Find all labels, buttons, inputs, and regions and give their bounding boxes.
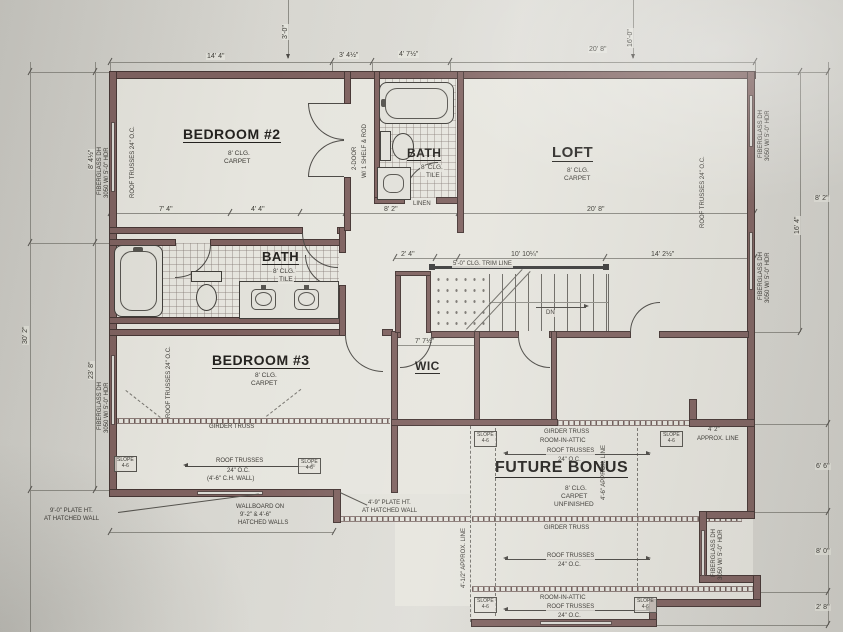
sink-faucet [261,285,266,289]
window-callout: 3050 W/ 5'-0" HDR [765,252,772,303]
roof-truss-note: ROOF TRUSSES 24" O.C. [130,126,137,198]
room-sub: 8' CLG. [420,165,444,172]
roof-truss-oc: 24" O.C. [558,613,581,620]
wall-chase [396,272,400,332]
arrowhead [183,463,188,467]
window-loft-right-lower [749,232,753,290]
approx-line-dashed [470,426,471,622]
dim-label-top-2: 3' 4½" [338,52,359,59]
wall-bath-top-east [458,72,463,232]
arrowhead [584,304,589,308]
girder-truss-line-bonus-bottom [472,586,756,592]
dim-label-right-bay-1: 6' 6" [815,463,831,470]
slope-marker: SLOPE 4-6 [474,597,497,613]
window-callout: FIBERGLASS DH [758,110,765,158]
wall-hall-west [340,286,345,335]
bathtub-faucet [133,247,143,252]
extension-line [755,62,756,72]
wall-bay-step-h2 [700,576,760,582]
dim-label-mid-1: 2' 4" [400,251,416,258]
window-callout: 3050 W/ 5'-0" HDR [104,382,111,433]
girder-truss-label: GIRDER TRUSS [544,525,589,532]
arrowhead [503,556,508,560]
room-sub: TILE [278,277,294,284]
ch-wall-note: (4'-6" C.H. WALL) [207,476,254,483]
extension-line [30,243,110,244]
dimension-line [395,258,755,259]
dim-label-right-upper: 8' 2" [814,195,830,202]
plate-height-note: 4'-9" PLATE HT. [368,500,411,507]
roof-truss-oc: 24" O.C. [558,562,581,569]
room-title-loft: LOFT [552,145,593,162]
wall-stairhall-south [550,332,630,337]
stair-direction-arrow [536,307,586,308]
dim-label-upper-2: 4' 4" [250,206,266,213]
approx-line-dashed [495,428,496,616]
dim-label-right-loft: 16' 4" [794,216,801,235]
roof-truss-note: ROOF TRUSSES 24" O.C. [166,346,173,418]
window-callout: 3050 W/ 5'-0" HDR [718,529,725,580]
extension-line [30,490,110,491]
dim-label-cut-1: 3'-0" [282,24,289,40]
arrowhead [286,54,290,59]
room-sub: TILE [425,173,441,180]
extension-line [450,62,451,72]
room-in-attic-label: ROOM-IN-ATTIC [540,595,586,602]
wall-stairhall-south [660,332,748,337]
railing-post [429,264,435,270]
approx-line-note: 4'-1/2" APPROX. LINE [461,528,468,588]
arrowhead [646,451,651,455]
bathtub-basin [385,88,448,119]
girder-truss-label: GIRDER TRUSS [208,424,255,431]
railing-post [603,264,609,270]
approx-line-dashed [637,428,638,586]
stair-dn-label: DN [545,310,556,317]
door-leaf [308,176,344,177]
closet-door-note: 2-DOOR [352,147,359,170]
extension-line [332,62,333,72]
arrowhead [503,607,508,611]
extension-line [755,72,828,73]
dim-label-right-bay-2: 8' 0" [815,548,831,555]
room-sub: 8' CLG. [272,269,296,276]
dim-label-left-lower: 23' 8" [88,361,95,380]
room-sub: CARPET [251,381,277,388]
window-bonus-bay [701,530,705,576]
window-callout: 3050 W/ 5'-0" HDR [765,110,772,161]
closet-shelf-note: W/ 1 SHELF & ROD [362,124,369,178]
room-in-attic-label: ROOM-IN-ATTIC [540,438,586,445]
window-loft-right-upper [749,95,753,147]
room-title-wic: WIC [415,360,440,374]
wall-closet-west [345,178,350,230]
sink-bowl [298,292,315,306]
dimension-line [110,62,755,63]
approx-line-note: APPROX. LINE [697,436,739,443]
roof-truss-oc: 24" O.C. [558,457,581,464]
slope-value: 4-6 [477,439,494,445]
room-sub: UNFINISHED [554,502,594,509]
window-bedroom3-left [111,355,115,425]
wall-chase [396,272,430,275]
dim-label-top-4: 20' 8" [588,46,607,53]
dim-label-right-bay-3: 2' 8" [815,604,831,611]
slope-marker: SLOPE 4-6 [114,456,137,472]
slope-marker: SLOPE 4-6 [474,431,497,447]
window-bonus-bottom [540,621,612,625]
stair-stringer-line [489,302,608,303]
room-sub: 8' CLG. [228,151,250,158]
ceiling-trim-line-label: 5'-0" CLG. TRIM LINE [452,261,513,268]
dim-label-mid-2: 10' 10¼" [510,251,539,258]
wallboard-note: HATCHED WALLS [238,520,288,527]
toilet-tank [380,131,391,161]
extension-line [754,424,828,425]
girder-truss-label: GIRDER TRUSS [544,429,589,436]
sink-bowl [383,174,404,193]
wallboard-note: WALLBOARD ON [236,504,284,511]
room-sub: 8' CLG. [255,373,277,380]
dim-label-left-upper: 8' 4½" [88,149,95,170]
dimension-line [95,62,96,490]
bonus-corner-dim: 4' 2" [708,427,720,434]
wallboard-note: 9'-2" & 4'-6" [240,512,271,519]
sink-faucet [304,285,309,289]
window-callout: 3050 W/ 5'-0" HDR [104,147,111,198]
dim-label-upper-4: 20' 8" [586,206,605,213]
wall-bedroom3-top [383,330,392,335]
extension-line [655,625,828,626]
roof-truss-label: ROOF TRUSSES [546,604,595,611]
dimension-line [110,532,334,533]
dimension-line [828,62,829,625]
wall-chase [427,272,430,332]
linen-label: LINEN [412,201,432,208]
plate-height-note: AT HATCHED WALL [362,508,417,515]
slope-marker: SLOPE 4-6 [634,597,657,613]
dim-label-top-3: 4' 7½" [398,51,419,58]
room-title-bedroom3: BEDROOM #3 [212,353,310,369]
slope-value: 4-6 [637,605,654,611]
room-title-bath-mid: BATH [262,250,299,265]
room-sub: 8' CLG. [565,486,587,493]
roof-truss-label: ROOF TRUSSES [546,553,595,560]
window-callout: FIBERGLASS DH [711,529,718,577]
extension-line [110,62,111,72]
wall-bedroom2-bottom [110,228,302,233]
dimension-line [110,213,755,214]
dim-label-cut-2: 16'-0" [627,28,634,48]
extension-line [372,62,373,72]
floor-plan-sheet: 14' 4" 3' 4½" 4' 7½" 20' 8" 3'-0" 16'-0"… [0,0,843,632]
slope-value: 4-6 [477,605,494,611]
dim-tick [826,621,831,628]
wall-step [334,490,340,522]
wall-bay-step-h [700,512,754,518]
toilet-tank [191,271,222,282]
dimension-line [800,72,801,332]
dim-label-mid-3: 14' 2½" [650,251,675,258]
wall-wic-bottom [392,420,557,425]
extension-line [760,592,828,593]
dim-tick [332,528,337,535]
room-title-bedroom2: BEDROOM #2 [183,127,281,143]
low-wall-hatched [338,516,470,522]
plate-height-note: AT HATCHED WALL [44,516,99,523]
extension-line [30,72,110,73]
roof-truss-oc: 24" O.C. [227,468,250,475]
girder-truss-line-bonus-top [557,420,692,426]
bathtub-basin [120,251,157,311]
window-callout: FIBERGLASS DH [97,147,104,195]
plate-height-note: 9'-0" PLATE HT. [50,508,93,515]
slope-marker: SLOPE 4-6 [660,431,683,447]
wall-closet-west [345,72,350,103]
dim-tick [798,328,803,335]
room-sub: 8' CLG. [567,168,589,175]
slope-value: 4-6 [301,466,318,472]
truss-span-arrow [185,466,315,467]
wall-bedroom3-top [110,330,345,335]
extension-line [748,332,800,333]
slope-marker: SLOPE 4-6 [298,458,321,474]
dim-label-upper-3: 8' 2" [383,206,399,213]
wall-closet2-east [552,332,556,422]
extension-line [751,512,828,513]
wall-bay-top [690,420,754,426]
wall-hall-west [340,228,345,252]
wall-wic-east [475,332,479,422]
dim-label-top-1: 14' 4" [206,53,225,60]
window-callout: FIBERGLASS DH [97,382,104,430]
wall-exterior-top [110,72,755,78]
window-callout: FIBERGLASS DH [758,252,765,300]
dim-label-left-outer: 30' 2" [22,326,29,345]
bathtub-faucet [381,99,386,107]
arrowhead [631,54,635,59]
room-sub: CARPET [561,494,587,501]
roof-truss-label: ROOF TRUSSES [546,448,595,455]
sink-bowl [255,292,272,306]
room-title-bath-top: BATH [407,147,441,161]
room-sub: CARPET [564,176,590,183]
stair-open-dotted-area [434,274,488,331]
roof-truss-label: ROOF TRUSSES [215,458,264,465]
toilet-bowl [196,284,217,311]
dim-label-upper-1: 7' 4" [158,206,174,213]
arrowhead [646,556,651,560]
wall-wic-west [392,332,397,492]
dimension-line [30,62,31,632]
door-leaf [308,103,344,104]
window-bedroom2-left [111,122,115,192]
slope-value: 4-6 [117,464,134,470]
roof-truss-note: ROOF TRUSSES 24" O.C. [700,156,707,228]
room-sub: CARPET [224,159,250,166]
wall-bonus-bottom-right [650,600,760,606]
arrowhead [503,451,508,455]
slope-value: 4-6 [663,439,680,445]
wall-bath-top-bottom [437,198,458,203]
